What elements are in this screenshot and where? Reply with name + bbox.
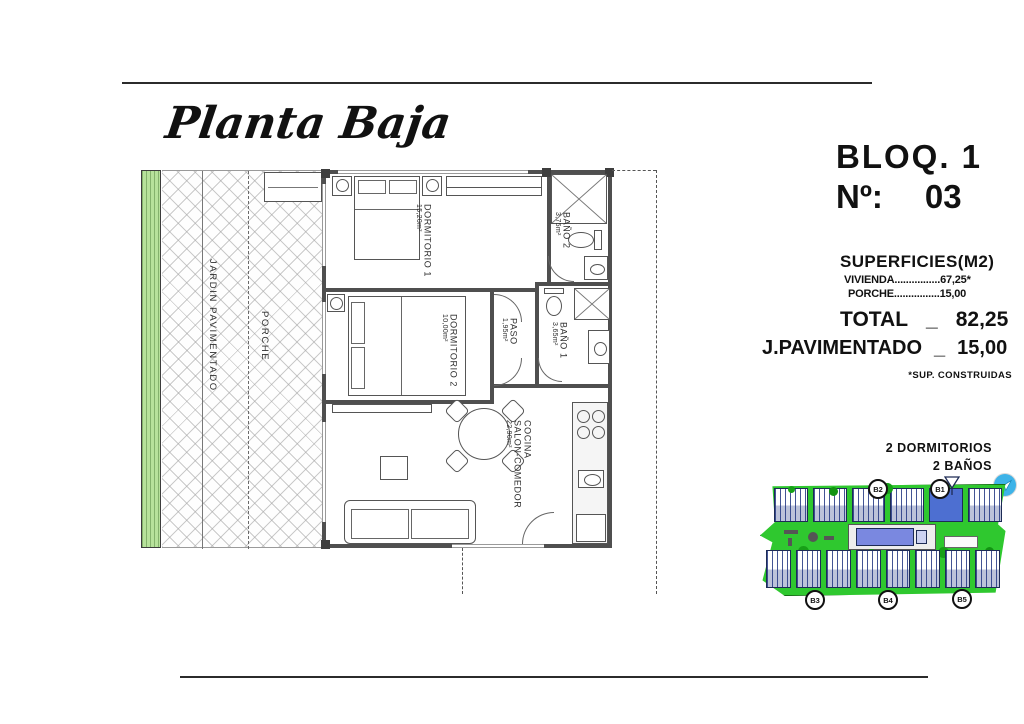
blanket-line	[401, 297, 402, 395]
playground-symbols	[782, 526, 836, 548]
pool	[856, 528, 914, 546]
building-row-top	[774, 488, 1002, 522]
surfaces-heading: SUPERFICIES(M2)	[840, 252, 1014, 272]
room-label-cocina: COCINA SALON-COMEDOR 22,90m²	[504, 420, 533, 508]
toilet-tank	[544, 288, 564, 294]
nightstand-symbol	[327, 294, 345, 312]
basin	[584, 474, 601, 486]
floor-plan: JARDIN PAVIMENTADO PORCHE	[140, 170, 672, 600]
surfaces-footnote: *SUP. CONSTRUIDAS	[762, 370, 1014, 381]
plan-sheet: Planta Baja BLOQ. 1 Nº: 03 SUPERFICIES(M…	[0, 0, 1024, 724]
room-label-dorm2: DORMITORIO 2 10,00m²	[440, 314, 458, 387]
burner	[592, 410, 605, 423]
unit-block	[813, 488, 847, 522]
boundary-dash-right	[656, 170, 657, 594]
surface-row-vivienda: VIVIENDA................67,25*	[844, 274, 1014, 286]
column	[542, 168, 551, 177]
surface-row-porche: PORCHE................15,00	[848, 288, 1014, 300]
block-badge-b5: B5	[952, 589, 972, 609]
pillow	[358, 180, 386, 194]
boundary-dash-top	[612, 170, 656, 171]
surface-total: TOTAL_82,25	[840, 308, 1014, 332]
shower-symbol	[574, 288, 610, 320]
garden-strip	[141, 170, 161, 548]
toilet-tank	[594, 230, 602, 250]
apartment-unit: DORMITORIO 1 15,20m² BAÑO 2 3,75m²	[322, 170, 612, 548]
lamp-icon	[330, 297, 343, 310]
window-north-dorm1	[338, 170, 528, 174]
lamp-icon	[426, 179, 439, 192]
porch-boundary-dashed-line	[248, 171, 249, 549]
unit-block	[796, 550, 821, 588]
top-rule	[122, 82, 872, 84]
toilet-symbol	[568, 232, 594, 248]
coffee-table-symbol	[380, 456, 408, 480]
sofa-symbol	[344, 500, 476, 544]
paved-outdoor-area: JARDIN PAVIMENTADO PORCHE	[162, 170, 322, 548]
pillow	[351, 347, 365, 389]
residential-complex-graphic	[760, 484, 1008, 596]
room-label-bano2: BAÑO 2 3,75m²	[553, 212, 571, 249]
site-plan: 2 DORMITORIOS 2 BAÑOS	[760, 440, 1018, 618]
garden-boundary-line	[202, 171, 203, 549]
block-badge-b2: B2	[868, 479, 888, 499]
unit-block	[890, 488, 924, 522]
blanket-line	[355, 209, 419, 210]
sink-symbol	[588, 330, 610, 364]
burner	[577, 426, 590, 439]
unit-features: 2 DORMITORIOS 2 BAÑOS	[886, 440, 992, 475]
kitchen-sink-symbol	[578, 470, 604, 488]
unit-block	[774, 488, 808, 522]
unit-block	[766, 550, 791, 588]
boundary-dash-bottom	[462, 548, 463, 594]
sliding-door-south	[452, 544, 544, 548]
surfaces-panel: SUPERFICIES(M2) VIVIENDA................…	[762, 252, 1014, 381]
unit-block	[968, 488, 1002, 522]
room-label-dorm1: DORMITORIO 1 15,20m²	[414, 204, 432, 277]
porch-closet-symbol	[264, 172, 322, 202]
feature-bathrooms: 2 BAÑOS	[886, 458, 992, 476]
pillow	[351, 302, 365, 344]
unit-block	[886, 550, 911, 588]
block-name: BLOQ. 1	[836, 138, 982, 176]
unit-block	[945, 550, 970, 588]
bush-dots	[788, 486, 795, 493]
burner	[592, 426, 605, 439]
surface-paved: J.PAVIMENTADO_15,00	[762, 337, 1014, 360]
room-label-bano1: BAÑO 1 3,65m²	[550, 322, 568, 359]
court-area	[944, 536, 978, 548]
window-west-dorm2	[322, 302, 326, 374]
garden-label: JARDIN PAVIMENTADO	[206, 259, 217, 392]
room-label-paso: PASO 1,95m²	[500, 318, 518, 345]
lamp-icon	[336, 179, 349, 192]
tv-unit-symbol	[332, 404, 432, 413]
unit-block	[826, 550, 851, 588]
selected-unit-marker	[944, 476, 960, 501]
block-info: BLOQ. 1 Nº: 03	[836, 138, 982, 216]
unit-block	[856, 550, 881, 588]
unit-number-label: Nº:	[836, 178, 883, 216]
burner	[577, 410, 590, 423]
unit-block	[975, 550, 1000, 588]
basin	[594, 342, 607, 356]
feature-bedrooms: 2 DORMITORIOS	[886, 440, 992, 458]
block-badge-b4: B4	[878, 590, 898, 610]
column	[321, 169, 330, 178]
unit-number-value: 03	[925, 178, 962, 216]
double-bed-symbol	[354, 176, 420, 260]
building-row-bottom	[766, 550, 1000, 588]
bottom-rule	[180, 676, 928, 678]
block-badge-b3: B3	[805, 590, 825, 610]
fridge-symbol	[576, 514, 606, 542]
unit-block	[915, 550, 940, 588]
sink-symbol	[584, 256, 608, 280]
nightstand-symbol	[332, 176, 352, 196]
pool-step	[916, 530, 927, 544]
nightstand-symbol	[422, 176, 442, 196]
column	[321, 540, 330, 549]
pillow	[389, 180, 417, 194]
sofa-cushion	[351, 509, 409, 539]
basin	[590, 264, 605, 275]
toilet-symbol	[546, 296, 562, 316]
dining-table-symbol	[458, 408, 510, 460]
sofa-cushion	[411, 509, 469, 539]
wardrobe-symbol	[446, 176, 542, 196]
unit-number-row: Nº: 03	[836, 178, 982, 216]
stove-symbol	[577, 410, 604, 439]
porch-label: PORCHE	[258, 311, 269, 361]
window-west-salon	[322, 422, 326, 522]
page-title: Planta Baja	[162, 98, 454, 149]
window-west-dorm1	[322, 184, 326, 266]
